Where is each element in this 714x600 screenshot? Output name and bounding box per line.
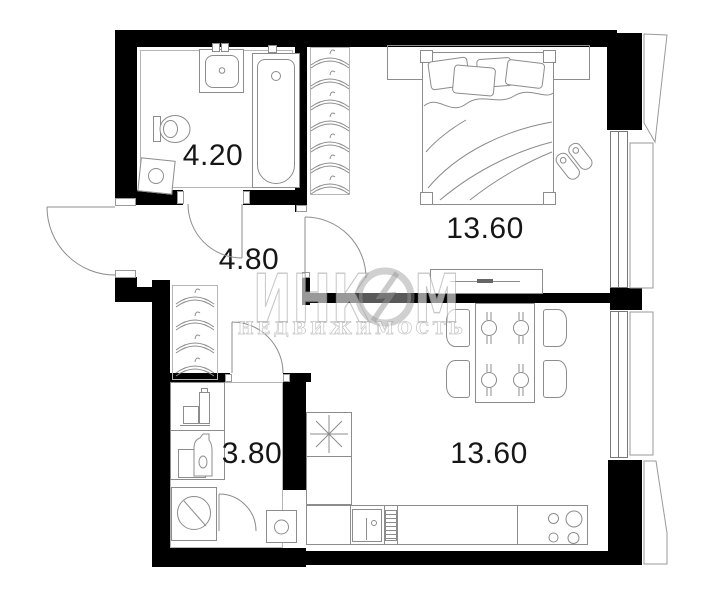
wall-interior-left bbox=[152, 280, 170, 567]
wall-storage-right bbox=[283, 373, 306, 490]
wall-bathroom-bottom-right bbox=[243, 190, 307, 205]
toilet-tank bbox=[153, 116, 161, 142]
room-area-label-hallway: 4.80 bbox=[189, 245, 309, 275]
pillow bbox=[452, 64, 496, 97]
chair bbox=[446, 360, 470, 398]
shelf-line bbox=[180, 425, 210, 426]
cosmetics-cap-icon bbox=[201, 388, 208, 393]
door-jamb bbox=[243, 191, 250, 204]
kitchen-sink bbox=[352, 509, 382, 542]
cosmetics-box-icon bbox=[183, 406, 199, 424]
kitchen-counter bbox=[306, 505, 588, 545]
counter-divider bbox=[397, 505, 398, 545]
window-bedroom bbox=[610, 131, 628, 288]
wardrobe-bedroom-outline bbox=[310, 47, 350, 195]
counter-divider bbox=[306, 456, 352, 457]
slippers-icon bbox=[554, 141, 595, 182]
dining-table bbox=[475, 303, 535, 403]
window-glass-line bbox=[618, 311, 619, 458]
radiator-icon bbox=[385, 510, 397, 541]
counter-divider bbox=[350, 505, 351, 545]
wall-bedroom-kitchen-divider bbox=[310, 293, 612, 303]
pillar-top-right bbox=[607, 33, 642, 130]
window-glass-line bbox=[618, 131, 619, 288]
cosmetics-bottle-icon bbox=[199, 392, 210, 424]
sideboard-detail bbox=[477, 279, 493, 283]
entrance-door-arc-icon bbox=[47, 207, 115, 275]
chair bbox=[543, 360, 567, 398]
bathtub-drain-icon bbox=[271, 71, 281, 81]
room-area-label-bathroom: 4.20 bbox=[153, 141, 273, 171]
pillow bbox=[505, 59, 546, 89]
bed-post bbox=[543, 50, 556, 63]
sink-faucet-icon bbox=[221, 43, 229, 52]
kitchen-counter-column bbox=[306, 412, 352, 505]
counter-divider bbox=[517, 505, 518, 545]
wall-bottom-right bbox=[306, 551, 642, 565]
chair bbox=[543, 309, 567, 347]
room-area-label-storage: 3.80 bbox=[192, 439, 312, 469]
door-jamb bbox=[283, 374, 290, 382]
bed-post bbox=[543, 192, 556, 205]
drain-box bbox=[266, 510, 297, 543]
wall-divider-endcap bbox=[302, 278, 310, 305]
bathtub-fixture-icon bbox=[268, 45, 277, 53]
room-area-label-bedroom: 13.60 bbox=[425, 214, 545, 244]
bed-post bbox=[420, 192, 433, 205]
floor-plan: 4.20 4.80 13.60 3.80 13.60 bbox=[0, 0, 714, 600]
wall-bottom-left bbox=[152, 548, 306, 567]
chair bbox=[446, 309, 470, 347]
bedroom-door-arc-icon bbox=[305, 217, 366, 278]
wall-left-upper bbox=[115, 30, 137, 205]
storage-top-door-arc-icon bbox=[232, 322, 283, 373]
wall-entrance-connector bbox=[130, 287, 154, 302]
watermark-subtitle: НЕДВИЖИМОСТЬ bbox=[238, 319, 467, 339]
door-jamb bbox=[115, 198, 136, 206]
shelf-divider bbox=[170, 430, 225, 431]
pillar-mid-right bbox=[610, 288, 642, 310]
bathroom-sink-basin bbox=[205, 55, 239, 88]
door-jamb bbox=[115, 270, 136, 278]
pillar-bottom-right bbox=[608, 460, 642, 565]
room-area-label-kitchen: 13.60 bbox=[429, 439, 549, 469]
door-jamb bbox=[225, 374, 232, 382]
door-jamb bbox=[296, 205, 307, 212]
sink-faucet-icon bbox=[212, 43, 220, 52]
window-kitchen bbox=[610, 311, 628, 458]
washing-machine-storage bbox=[171, 487, 217, 541]
wardrobe-nook-outline bbox=[172, 285, 218, 380]
door-jamb bbox=[177, 191, 184, 204]
